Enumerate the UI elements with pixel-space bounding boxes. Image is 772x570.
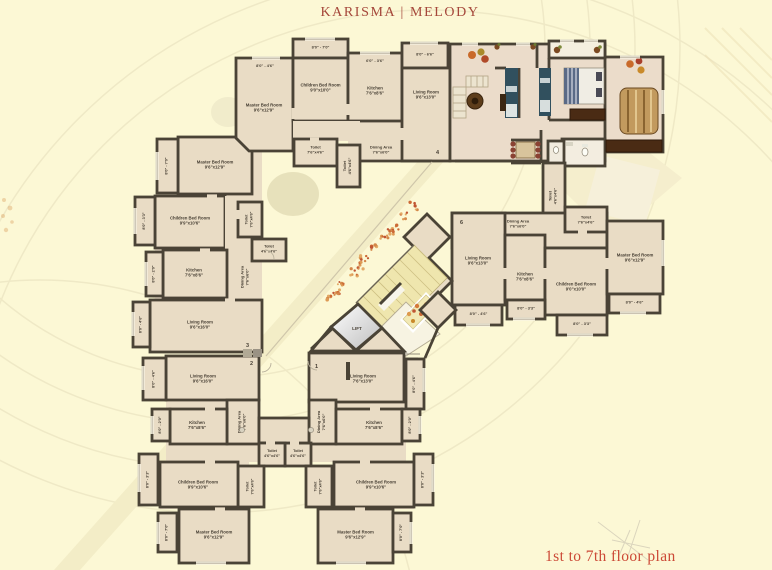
- svg-text:3: 3: [246, 343, 249, 349]
- svg-text:Living Room9'6"x13'0": Living Room9'6"x13'0": [465, 255, 491, 265]
- svg-text:8'0" - 4'6": 8'0" - 4'6": [139, 316, 143, 333]
- svg-text:8'0" - 7'0": 8'0" - 7'0": [165, 524, 169, 541]
- svg-text:8'0" - 4'6": 8'0" - 4'6": [411, 375, 416, 393]
- svg-text:Living Room9'6"x16'0": Living Room9'6"x16'0": [190, 373, 216, 383]
- svg-text:8'0" - 7'0": 8'0" - 7'0": [165, 157, 169, 174]
- svg-text:Kitchen7'6"x8'6": Kitchen7'6"x8'6": [366, 85, 384, 95]
- svg-text:8'0" - 4'6": 8'0" - 4'6": [151, 370, 156, 388]
- svg-text:8'0" - 2'0": 8'0" - 2'0": [152, 265, 156, 282]
- svg-text:8'0" - 4'6": 8'0" - 4'6": [626, 300, 644, 305]
- svg-text:8'0" - 2'0": 8'0" - 2'0": [158, 416, 162, 433]
- svg-text:Living Room9'6"x13'0": Living Room9'6"x13'0": [413, 89, 439, 99]
- svg-text:2: 2: [250, 361, 253, 367]
- svg-text:8'0" - 4'6": 8'0" - 4'6": [470, 311, 488, 316]
- svg-text:8'0" - 3'3": 8'0" - 3'3": [573, 321, 591, 326]
- svg-text:Living Room7'6"x13'0": Living Room7'6"x13'0": [350, 373, 376, 383]
- svg-text:1st to 7th floor plan: 1st to 7th floor plan: [545, 548, 676, 565]
- svg-text:8'0" - 7'0": 8'0" - 7'0": [399, 524, 403, 541]
- svg-text:1: 1: [315, 364, 318, 370]
- svg-text:8'0" - 7'0": 8'0" - 7'0": [312, 45, 330, 50]
- svg-text:8'0" - 3'3": 8'0" - 3'3": [517, 306, 535, 311]
- svg-text:6: 6: [460, 220, 463, 226]
- svg-text:Living Room9'6"x16'0": Living Room9'6"x16'0": [187, 319, 213, 329]
- svg-text:LIFT: LIFT: [352, 326, 362, 331]
- svg-text:Kitchen7'6"x8'6": Kitchen7'6"x8'6": [188, 420, 206, 430]
- svg-text:8'0" - 2'0": 8'0" - 2'0": [408, 416, 412, 433]
- svg-text:Kitchen7'6"x8'6": Kitchen7'6"x8'6": [185, 267, 203, 277]
- svg-text:KARISMA | MELODY: KARISMA | MELODY: [320, 5, 479, 20]
- svg-text:8'0" - 6'6": 8'0" - 6'6": [416, 52, 434, 57]
- svg-text:8'0" - 4'6": 8'0" - 4'6": [256, 63, 274, 68]
- svg-text:8'0" - 3'3": 8'0" - 3'3": [421, 471, 425, 488]
- svg-text:Kitchen7'6"x8'6": Kitchen7'6"x8'6": [365, 420, 383, 430]
- svg-text:8'0" - 3'3": 8'0" - 3'3": [146, 471, 150, 488]
- svg-text:Kitchen7'6"x8'6": Kitchen7'6"x8'6": [516, 271, 534, 281]
- svg-text:6'0" - 3'6": 6'0" - 3'6": [366, 58, 384, 63]
- svg-text:8'0" - 3'3": 8'0" - 3'3": [142, 212, 146, 229]
